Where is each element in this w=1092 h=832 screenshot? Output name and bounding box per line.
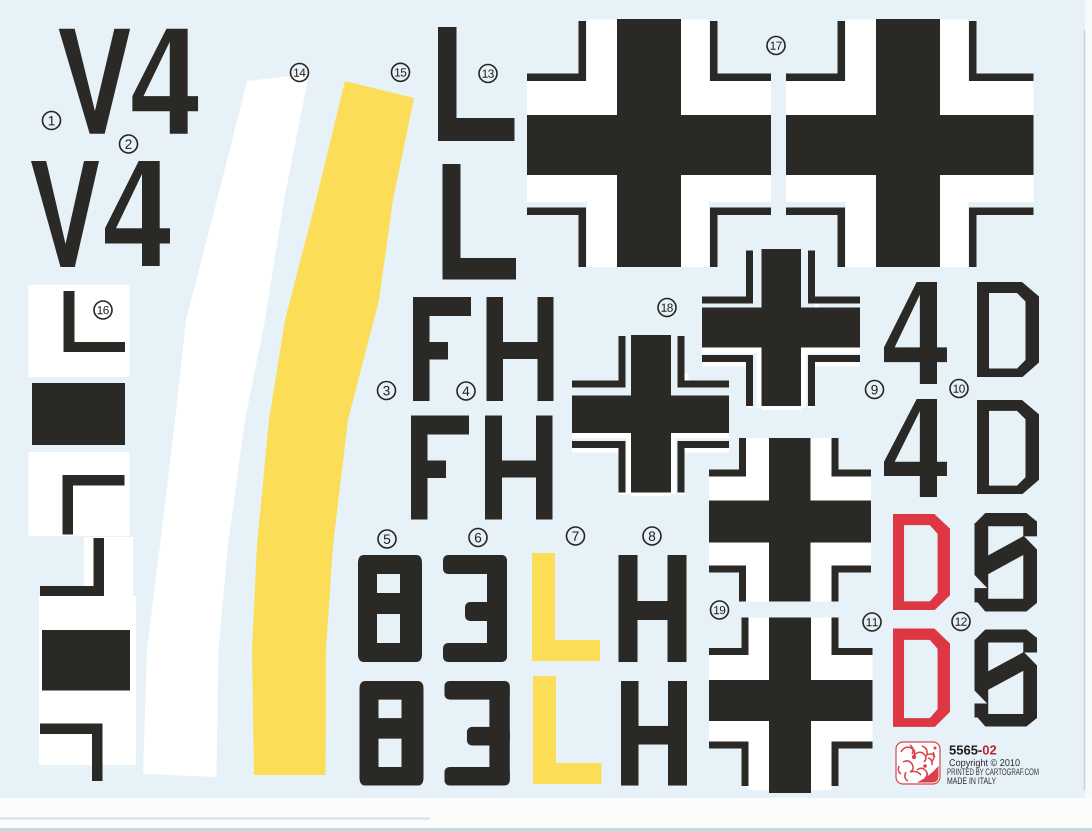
svg-text:MADE IN ITALY: MADE IN ITALY — [947, 776, 997, 787]
svg-text:5565-02: 5565-02 — [949, 743, 997, 758]
